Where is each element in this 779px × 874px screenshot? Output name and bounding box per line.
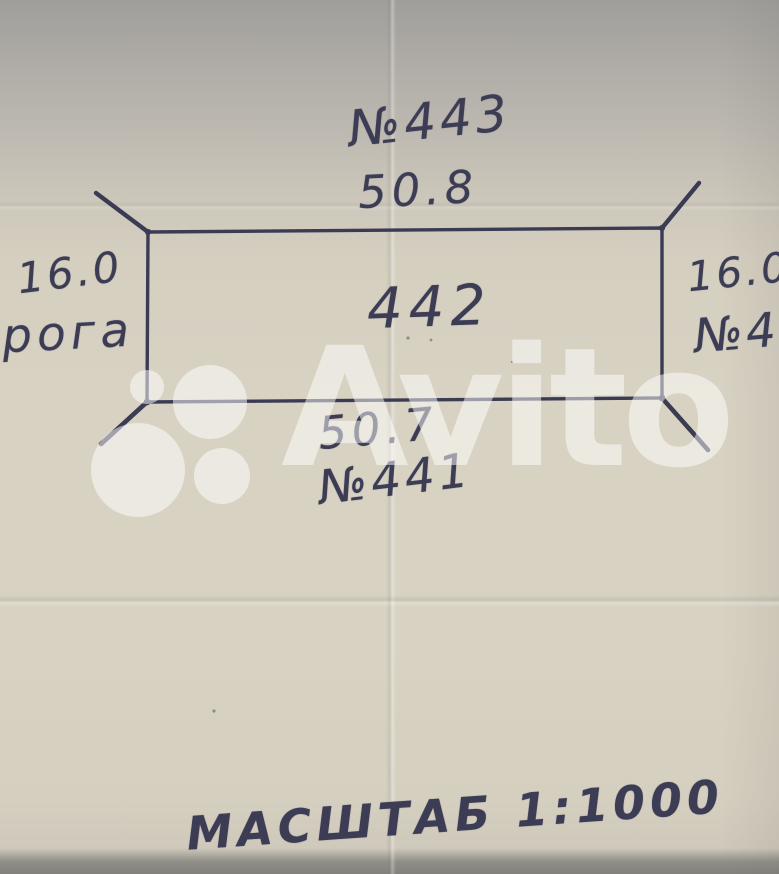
east-neighbor-label: №4 bbox=[692, 306, 779, 360]
corner-dot-bottom-left bbox=[144, 399, 150, 405]
corner-dot-top-right bbox=[659, 225, 664, 230]
corner-tick-bottom-right bbox=[662, 398, 708, 450]
west-side-length-label: 16.0 bbox=[15, 246, 125, 301]
east-side-length-label: 16.0 bbox=[685, 247, 779, 299]
north-side-length-label: 50.8 bbox=[357, 164, 479, 215]
ink-specks bbox=[212, 336, 513, 712]
corner-tick-bottom-left bbox=[101, 402, 147, 444]
corner-dot-top-left bbox=[145, 229, 150, 234]
corner-tick-top-left bbox=[96, 193, 148, 232]
plot-number-label: 442 bbox=[366, 278, 493, 338]
corner-dot-bottom-right bbox=[659, 395, 665, 401]
west-road-label: рога bbox=[1, 307, 135, 361]
plot-sketch-photo: №443 50.8 442 50.7 №441 16.0 рога 16.0 №… bbox=[0, 0, 779, 874]
corner-tick-top-right bbox=[662, 183, 699, 228]
